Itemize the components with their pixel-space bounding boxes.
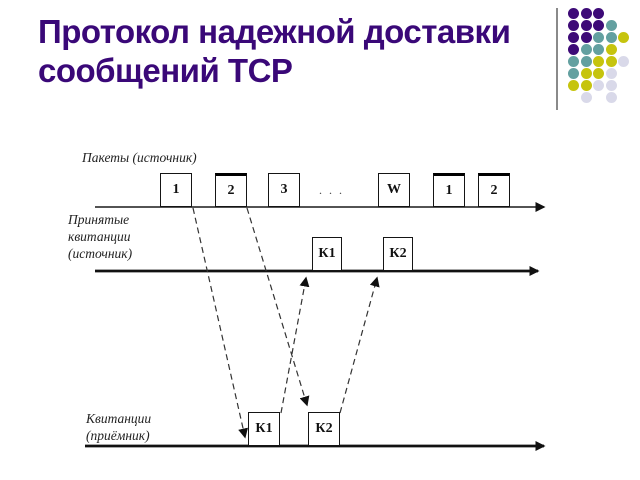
receiver-acks-label-line1: Квитанции <box>86 410 151 427</box>
packets-ellipsis: . . . <box>319 183 344 198</box>
receiver-ack-box-k1: К1 <box>248 412 280 446</box>
packet-box-1: 1 <box>160 173 192 207</box>
ack2-return-arrow <box>340 278 377 413</box>
packet-box-2: 2 <box>215 173 247 207</box>
ack1-return-arrow <box>281 278 306 413</box>
slide: Протокол надежной доставки сообщений TCP… <box>0 0 640 480</box>
source-ack-box-k2: К2 <box>383 237 413 271</box>
packets-timeline-label: Пакеты (источник) <box>82 150 197 166</box>
source-acks-timeline-label: Принятые квитанции (источник) <box>68 211 132 262</box>
source-acks-label-line1: Принятые <box>68 211 132 228</box>
receiver-acks-timeline-label: Квитанции (приёмник) <box>86 410 151 444</box>
packet-box-1-next: 1 <box>433 173 465 207</box>
source-acks-label-line3: (источник) <box>68 245 132 262</box>
receiver-ack-box-k2: К2 <box>308 412 340 446</box>
receiver-acks-label-line2: (приёмник) <box>86 427 151 444</box>
packet-box-2-next: 2 <box>478 173 510 207</box>
source-acks-label-line2: квитанции <box>68 228 132 245</box>
packet-box-w: W <box>378 173 410 207</box>
packet1-transmission-arrow <box>193 208 245 437</box>
packet-box-3: 3 <box>268 173 300 207</box>
source-ack-box-k1: К1 <box>312 237 342 271</box>
packet2-transmission-arrow <box>247 208 307 405</box>
